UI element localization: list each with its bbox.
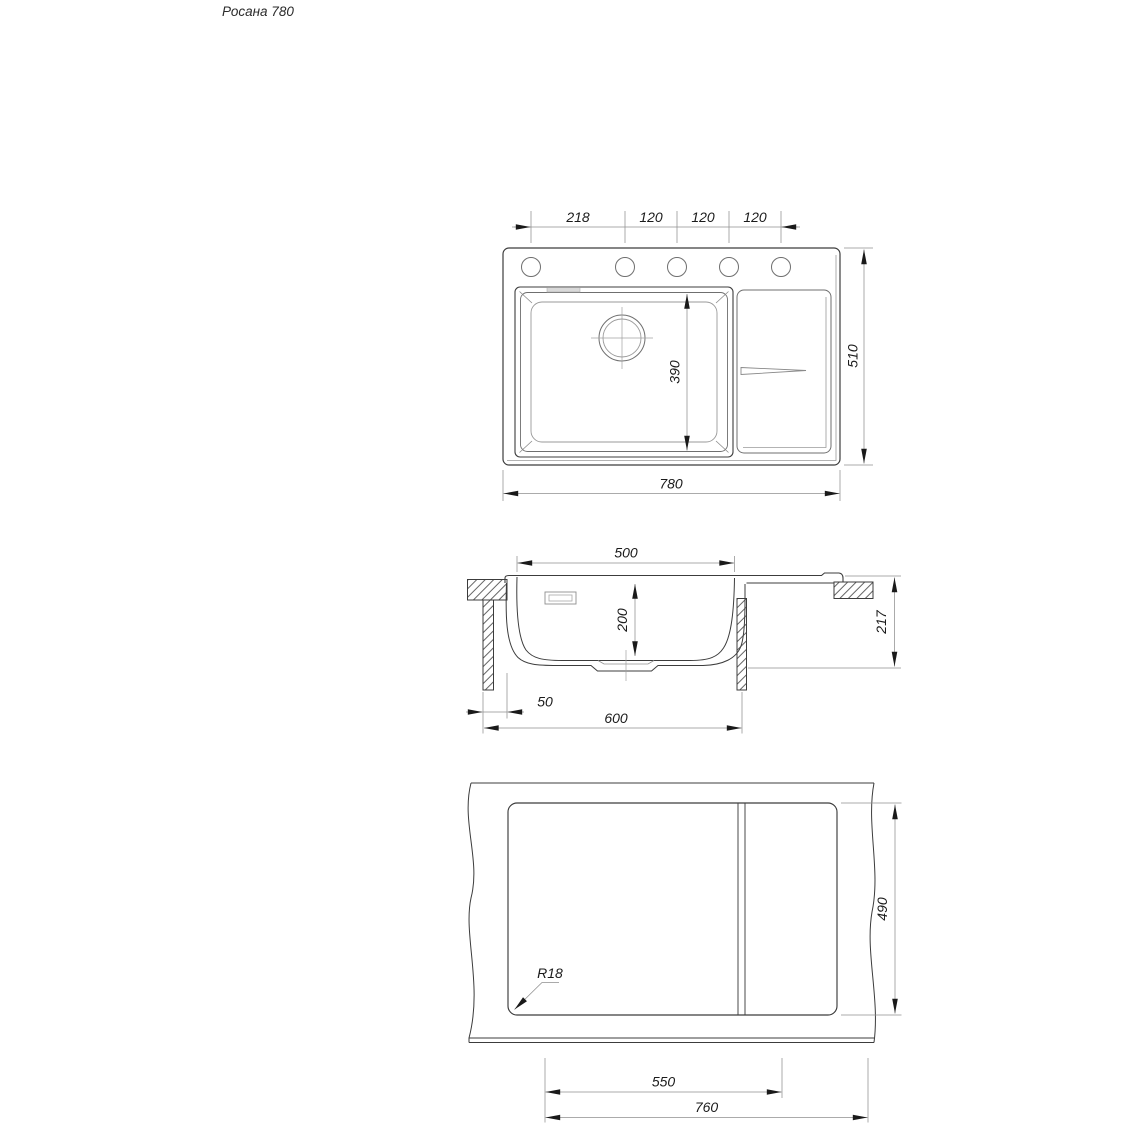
dim-120-1: 120 bbox=[639, 209, 663, 225]
dim-50: 50 bbox=[537, 694, 553, 710]
dimension-510: 510 bbox=[844, 248, 873, 465]
dim-510: 510 bbox=[845, 344, 861, 368]
overflow-slot bbox=[547, 288, 580, 293]
countertop-right-slab bbox=[834, 582, 873, 599]
dim-120-3: 120 bbox=[743, 209, 767, 225]
bowl-corner-chamfers bbox=[520, 292, 729, 453]
bowl-rim-outer bbox=[515, 287, 733, 457]
countertop-left-slab bbox=[468, 580, 508, 601]
cutout-outline bbox=[508, 803, 837, 1015]
drainboard-groove bbox=[741, 368, 806, 375]
dim-550: 550 bbox=[652, 1074, 676, 1090]
dimension-490: 490 bbox=[841, 803, 902, 1015]
dimension-hole-spacing: 218 120 120 120 bbox=[512, 209, 800, 243]
drawing-sheet: Росана 780 bbox=[0, 0, 1128, 1128]
sink-rim-profile bbox=[505, 573, 843, 583]
dimension-50: 50 bbox=[466, 673, 553, 734]
dimension-390: 390 bbox=[667, 294, 688, 451]
dimension-500: 500 bbox=[517, 545, 735, 573]
dim-780: 780 bbox=[659, 476, 683, 492]
bowl-floor bbox=[531, 302, 717, 442]
dim-218: 218 bbox=[565, 209, 590, 225]
countertop-left-cut-edge bbox=[483, 600, 494, 690]
countertop-break-left bbox=[468, 783, 474, 1043]
overflow-inner bbox=[549, 595, 572, 601]
dim-760: 760 bbox=[695, 1099, 719, 1115]
bowl-rim-inner bbox=[521, 293, 728, 452]
sink-rim-inner-edge bbox=[507, 255, 836, 461]
cutout-view: R18 490 550 760 bbox=[468, 783, 901, 1123]
dimension-550-760: 550 760 bbox=[545, 1058, 868, 1123]
dimension-780: 780 bbox=[503, 470, 840, 501]
dim-490: 490 bbox=[874, 897, 890, 921]
faucet-hole-5 bbox=[772, 258, 791, 277]
dimension-217: 217 bbox=[748, 576, 901, 668]
dimension-600: 600 bbox=[484, 692, 742, 734]
dim-500: 500 bbox=[614, 545, 638, 561]
technical-drawing: 218 120 120 120 780 510 bbox=[0, 0, 1128, 1128]
dim-r18: R18 bbox=[537, 965, 563, 981]
faucet-hole-4 bbox=[720, 258, 739, 277]
faucet-hole-2 bbox=[616, 258, 635, 277]
dim-200: 200 bbox=[614, 608, 630, 633]
dimension-200: 200 bbox=[614, 584, 635, 656]
overflow-outer bbox=[545, 592, 576, 604]
dim-120-2: 120 bbox=[691, 209, 715, 225]
faucet-hole-1 bbox=[522, 258, 541, 277]
sink-outer-outline bbox=[503, 248, 840, 465]
section-view: 500 200 217 50 bbox=[466, 545, 901, 734]
dim-390: 390 bbox=[667, 360, 683, 384]
faucet-hole-3 bbox=[668, 258, 687, 277]
dim-217: 217 bbox=[873, 609, 889, 635]
top-view: 218 120 120 120 780 510 bbox=[503, 209, 873, 501]
dimension-r18: R18 bbox=[515, 965, 564, 1010]
dim-600: 600 bbox=[604, 710, 628, 726]
